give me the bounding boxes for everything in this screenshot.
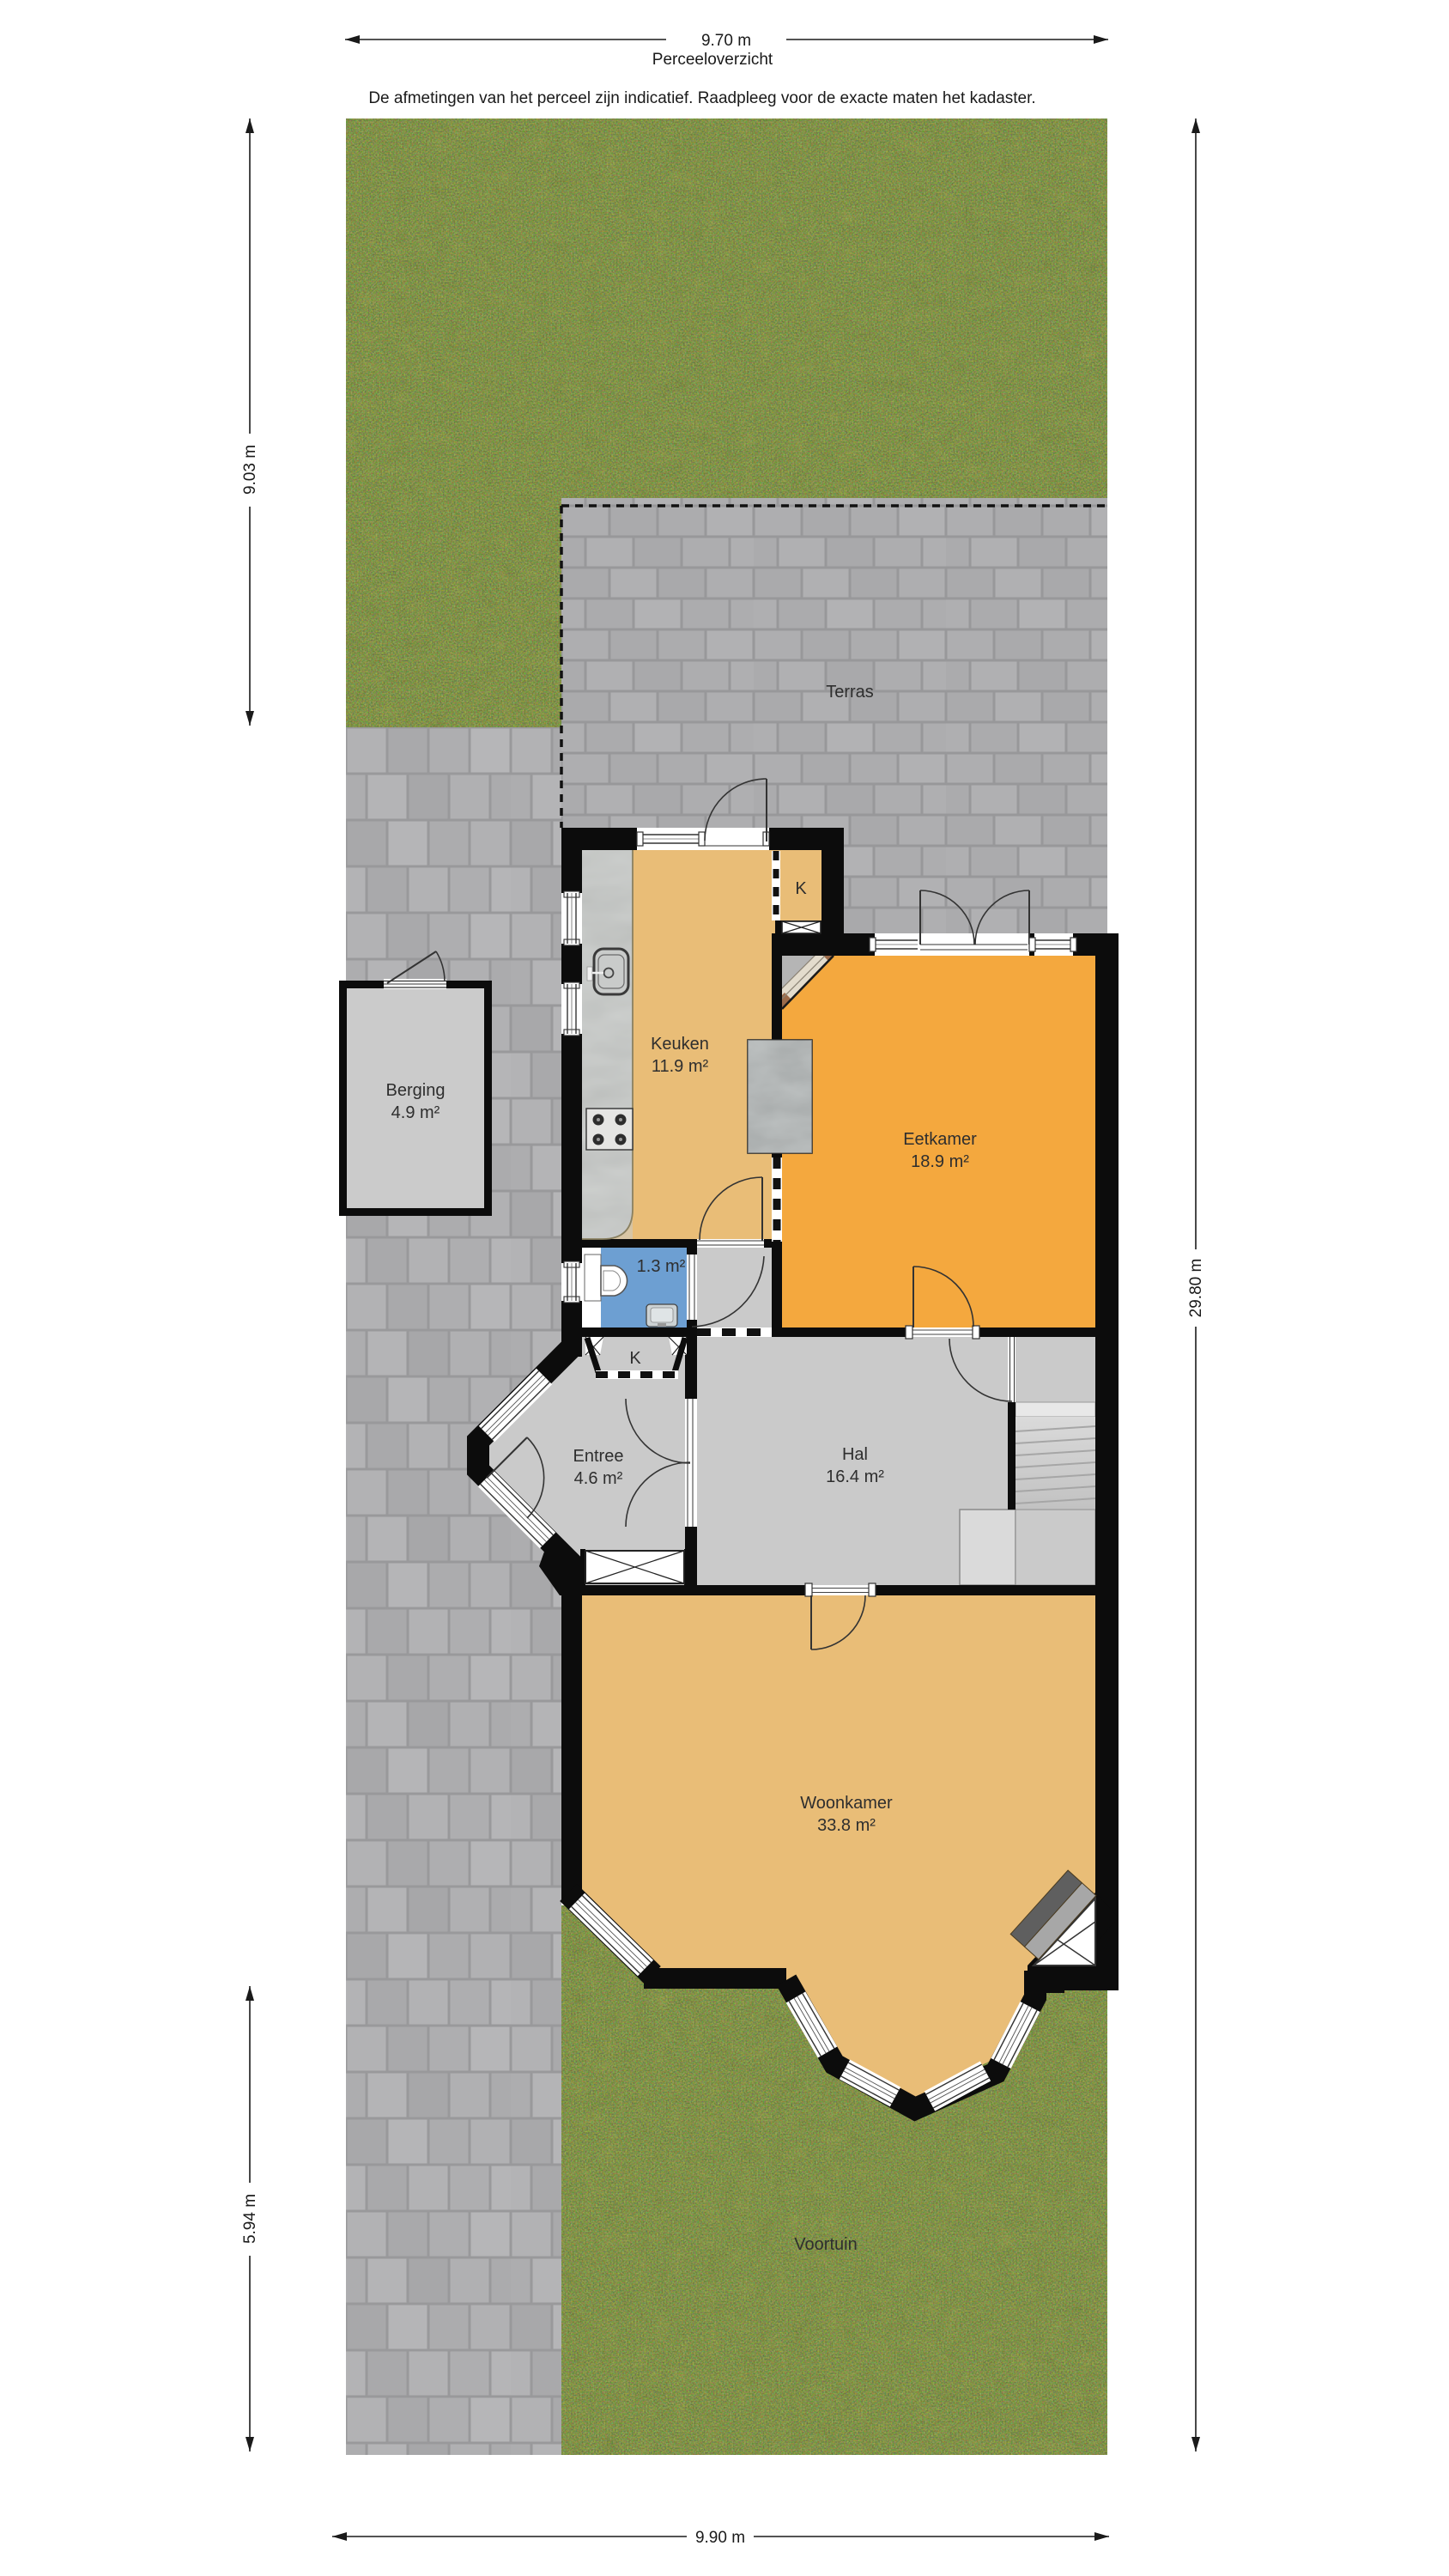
svg-text:Berging: Berging xyxy=(386,1081,446,1100)
svg-text:16.4 m²: 16.4 m² xyxy=(826,1467,884,1486)
svg-text:Hal: Hal xyxy=(842,1445,868,1464)
svg-text:5.94 m: 5.94 m xyxy=(241,2194,259,2244)
svg-text:4.6 m²: 4.6 m² xyxy=(574,1469,623,1488)
svg-text:1.3 m²: 1.3 m² xyxy=(637,1257,686,1276)
svg-text:9.03 m: 9.03 m xyxy=(241,445,259,495)
svg-text:Terras: Terras xyxy=(826,683,874,702)
svg-text:Voortuin: Voortuin xyxy=(794,2235,857,2254)
svg-text:Keuken: Keuken xyxy=(651,1035,709,1054)
svg-text:Perceeloverzicht: Perceeloverzicht xyxy=(652,51,773,69)
svg-text:K: K xyxy=(629,1349,641,1368)
svg-text:De afmetingen van het perceel: De afmetingen van het perceel zijn indic… xyxy=(368,89,1035,107)
svg-text:4.9 m²: 4.9 m² xyxy=(391,1103,440,1122)
svg-text:33.8 m²: 33.8 m² xyxy=(817,1816,876,1835)
svg-text:Woonkamer: Woonkamer xyxy=(800,1794,893,1813)
svg-text:9.70 m: 9.70 m xyxy=(701,32,751,50)
svg-text:18.9 m²: 18.9 m² xyxy=(911,1152,969,1171)
svg-text:Entree: Entree xyxy=(573,1447,624,1466)
svg-text:29.80 m: 29.80 m xyxy=(1187,1259,1205,1318)
svg-text:11.9 m²: 11.9 m² xyxy=(652,1057,709,1076)
svg-text:K: K xyxy=(795,879,807,898)
svg-text:9.90 m: 9.90 m xyxy=(695,2529,745,2547)
svg-text:Eetkamer: Eetkamer xyxy=(903,1130,977,1149)
